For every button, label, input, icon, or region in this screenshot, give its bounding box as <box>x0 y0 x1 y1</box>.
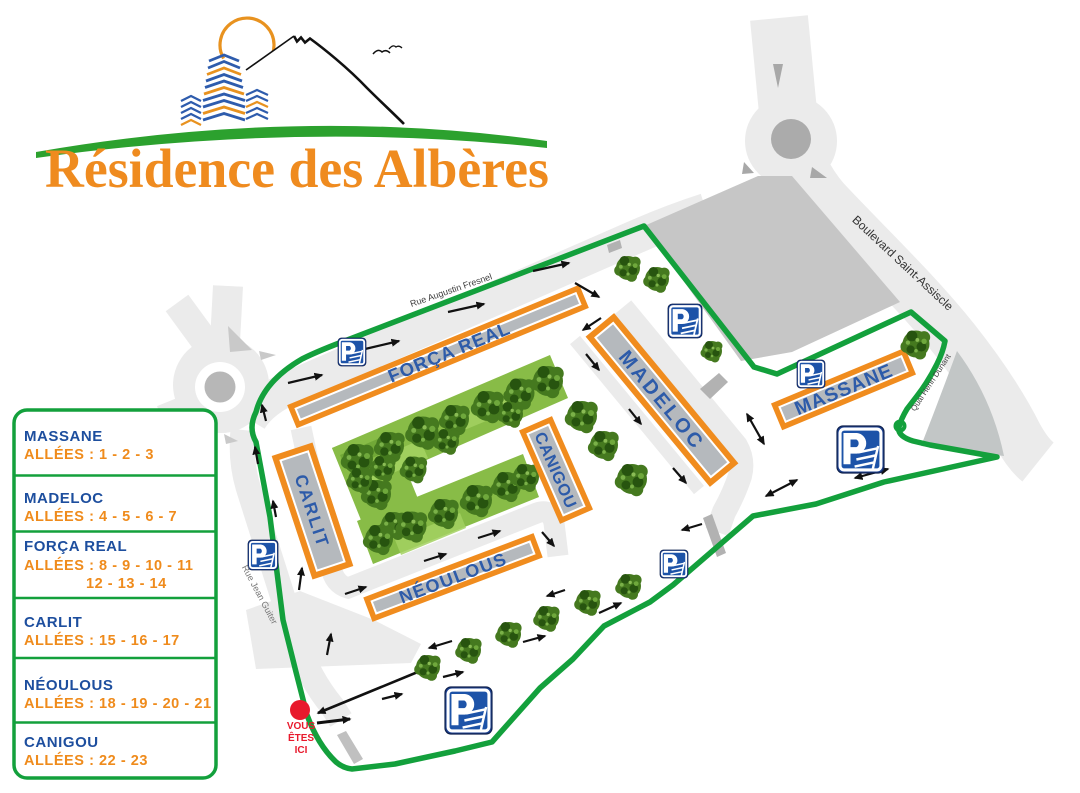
svg-text:ICI: ICI <box>295 745 308 756</box>
svg-text:Résidence des Albères: Résidence des Albères <box>45 138 549 199</box>
svg-text:FORÇA REAL: FORÇA REAL <box>24 538 127 555</box>
svg-text:CANIGOU: CANIGOU <box>24 734 99 751</box>
svg-text:MASSANE: MASSANE <box>24 428 103 445</box>
svg-text:MADELOC: MADELOC <box>24 490 104 507</box>
svg-text:ÊTES: ÊTES <box>288 731 314 744</box>
svg-text:ALLÉES : 15 - 16 - 17: ALLÉES : 15 - 16 - 17 <box>24 632 180 649</box>
svg-text:ALLÉES : 1 - 2 - 3: ALLÉES : 1 - 2 - 3 <box>24 446 154 463</box>
svg-text:NÉOULOUS: NÉOULOUS <box>24 677 113 694</box>
svg-text:ALLÉES : 22 - 23: ALLÉES : 22 - 23 <box>24 752 148 769</box>
svg-text:CARLIT: CARLIT <box>24 614 82 631</box>
svg-text:ALLÉES : 4 - 5 - 6 - 7: ALLÉES : 4 - 5 - 6 - 7 <box>24 508 177 525</box>
svg-text:VOUS: VOUS <box>287 721 316 732</box>
svg-text:ALLÉES : 8 - 9 - 10 - 11: ALLÉES : 8 - 9 - 10 - 11 <box>24 557 194 574</box>
svg-text:12 - 13 - 14: 12 - 13 - 14 <box>86 576 167 592</box>
svg-text:ALLÉES : 18 - 19 - 20 - 21: ALLÉES : 18 - 19 - 20 - 21 <box>24 695 212 712</box>
